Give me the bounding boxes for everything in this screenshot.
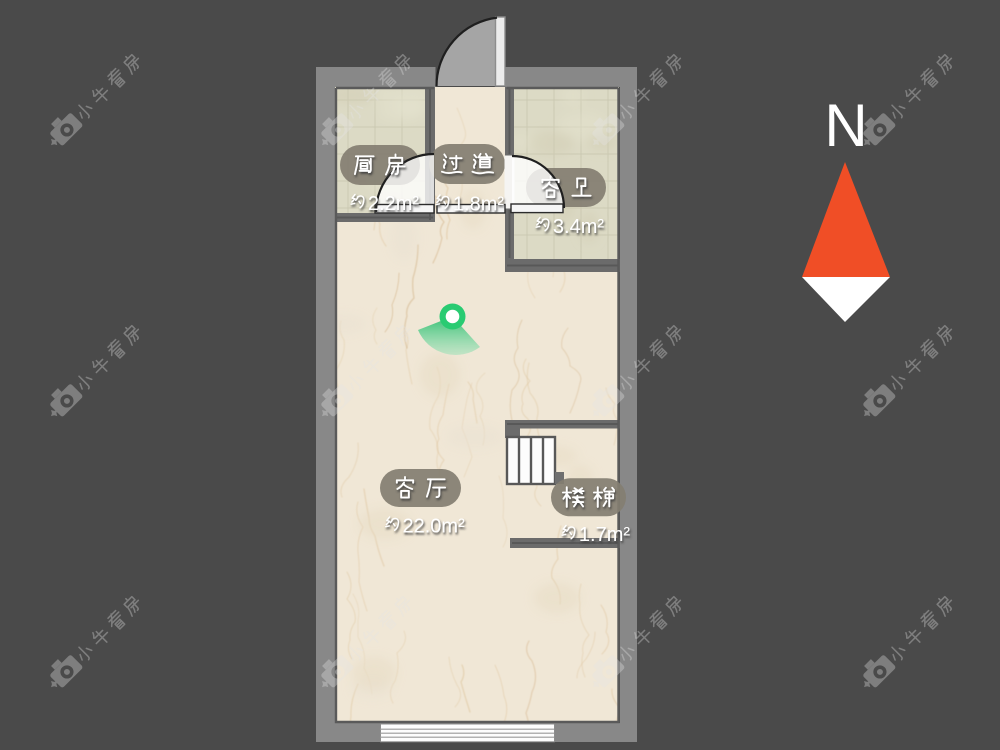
svg-text:3.4m²: 3.4m² bbox=[553, 216, 604, 238]
svg-text:22.0m²: 22.0m² bbox=[403, 516, 466, 538]
svg-text:2.2m²: 2.2m² bbox=[368, 193, 419, 215]
svg-text:1.8m²: 1.8m² bbox=[453, 194, 504, 216]
svg-text:1.7m²: 1.7m² bbox=[579, 524, 630, 546]
svg-text:N: N bbox=[824, 92, 867, 159]
